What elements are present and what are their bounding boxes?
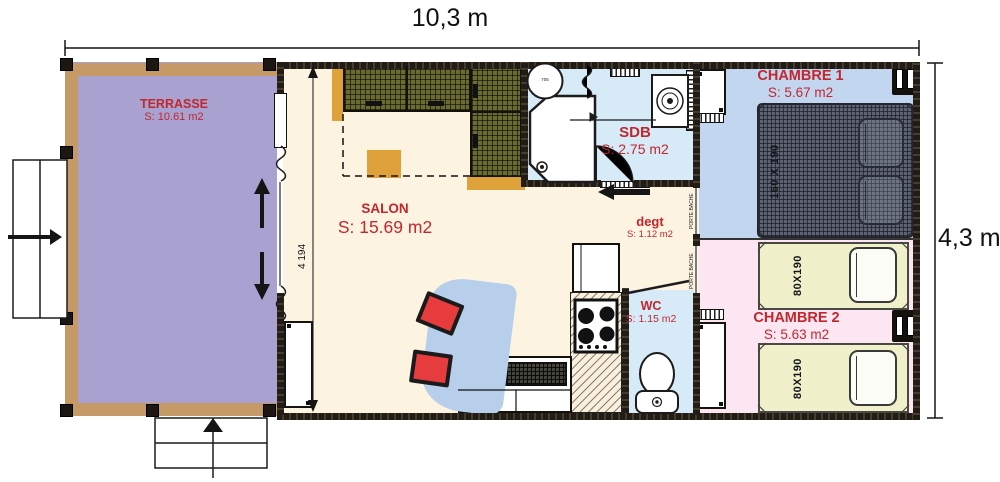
chambre2-label: CHAMBRE 2 S: 5.63 m2	[724, 310, 869, 342]
sdb-label: SDB S: 2.75 m2	[585, 124, 685, 157]
degt-entry-arrow	[598, 184, 650, 200]
room-name: TERRASSE	[99, 97, 249, 111]
room-area: S: 10.61 m2	[99, 111, 249, 124]
overall-width-dimension: 10,3 m	[400, 4, 500, 33]
terrasse-flow-arrows	[254, 178, 270, 300]
chambre1-label: CHAMBRE 1 S: 5.67 m2	[728, 68, 873, 100]
room-area: S: 5.63 m2	[724, 327, 869, 343]
room-area: S: 5.67 m2	[728, 85, 873, 101]
degt-label: degt S: 1.12 m2	[610, 215, 690, 241]
room-area: S: 15.69 m2	[325, 217, 445, 237]
room-area: S: 1.12 m2	[610, 230, 690, 241]
wc-label: WC S: 1.15 m2	[611, 299, 691, 325]
washbasin-label: 705	[536, 77, 554, 82]
interior-depth-dimension: 4 194	[297, 218, 313, 294]
porte-bache-label: PORTE BACHE	[690, 186, 703, 236]
stairs-left	[8, 160, 67, 318]
room-name: CHAMBRE 1	[728, 68, 873, 85]
overall-depth-dimension: 4,3 m	[938, 224, 1000, 253]
terrasse-label: TERRASSE S: 10.61 m2	[99, 97, 249, 124]
room-name: SDB	[585, 124, 685, 141]
bed-corner-ticks	[757, 103, 914, 413]
porte-bache-label: PORTE BACHE	[690, 245, 703, 297]
room-area: S: 2.75 m2	[585, 141, 685, 157]
floor-plan: 160 X 190 80X190 80X190	[0, 0, 1000, 482]
salon-label: SALON S: 15.69 m2	[325, 201, 445, 237]
room-name: WC	[611, 299, 691, 313]
room-area: S: 1.15 m2	[611, 313, 691, 325]
room-name: SALON	[325, 201, 445, 217]
room-name: degt	[610, 215, 690, 230]
room-name: CHAMBRE 2	[724, 310, 869, 327]
stairs-bottom	[155, 418, 267, 478]
